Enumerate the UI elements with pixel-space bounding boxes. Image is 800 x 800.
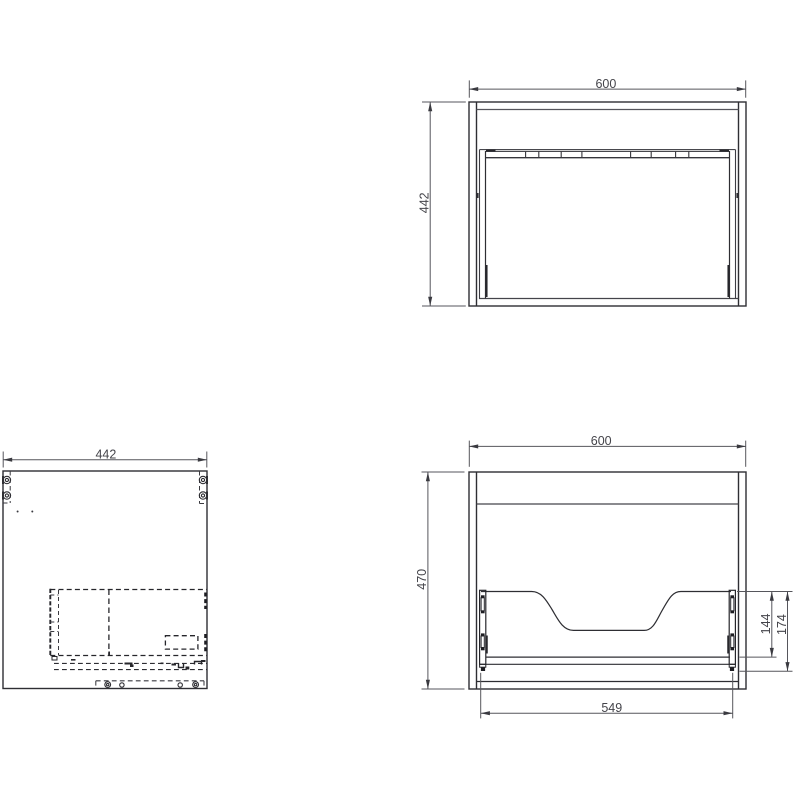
svg-text:174: 174 <box>775 614 789 635</box>
svg-text:600: 600 <box>595 77 616 91</box>
svg-text:470: 470 <box>415 569 429 590</box>
svg-text:442: 442 <box>95 447 116 461</box>
svg-text:144: 144 <box>759 613 773 634</box>
svg-text:442: 442 <box>418 192 432 213</box>
svg-text:600: 600 <box>591 434 612 448</box>
svg-text:549: 549 <box>601 701 622 715</box>
